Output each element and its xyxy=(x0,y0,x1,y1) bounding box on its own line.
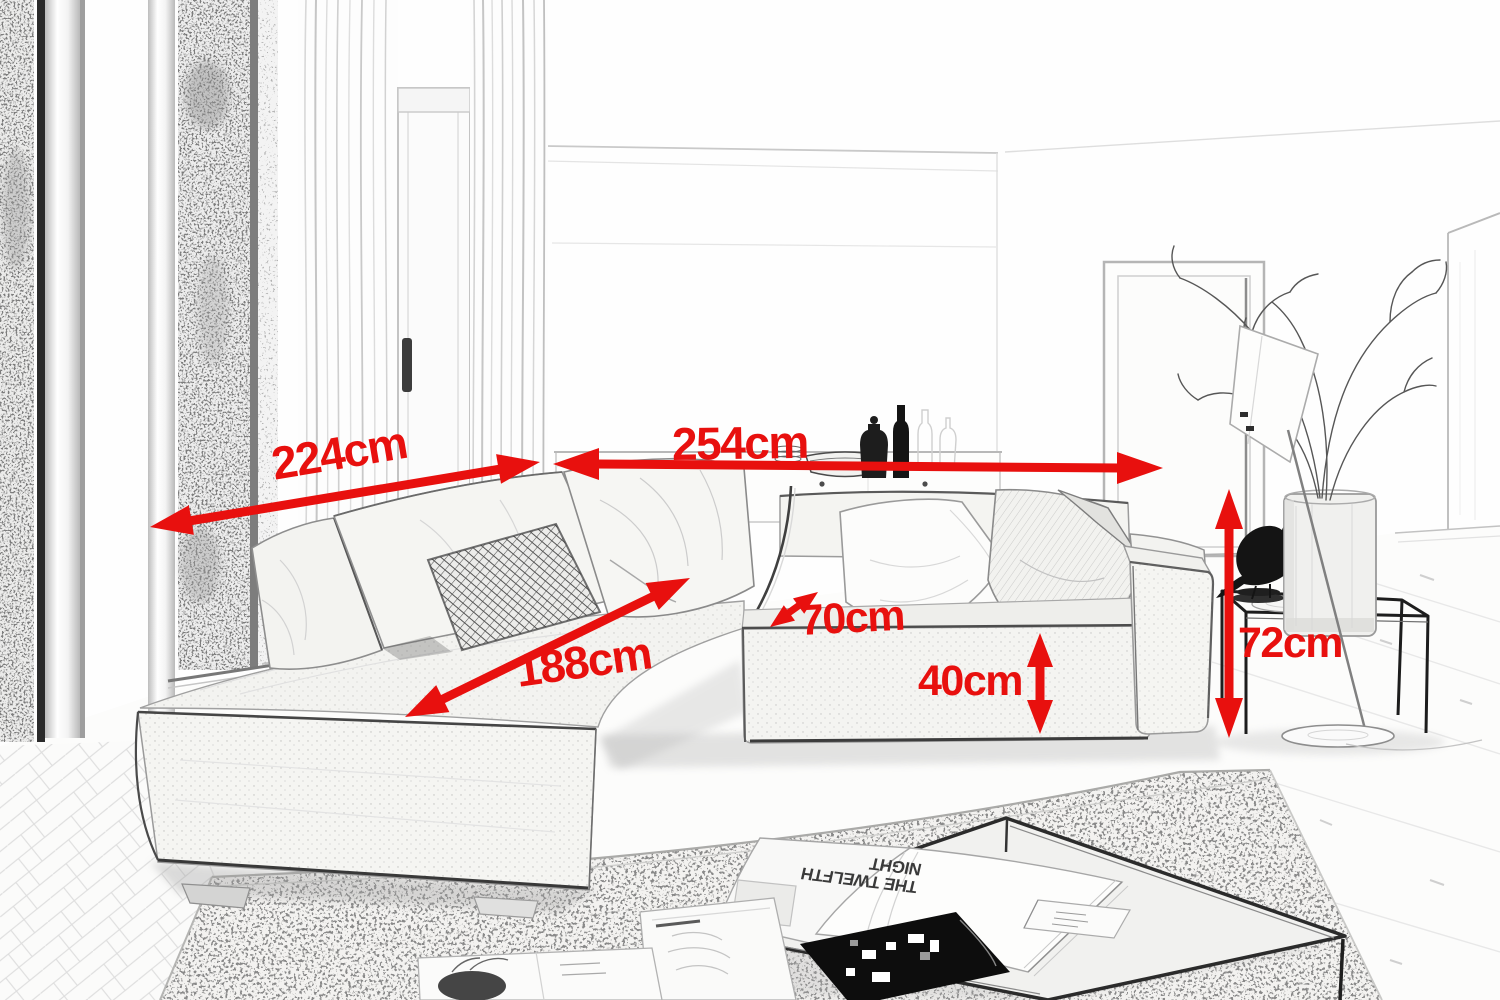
window-frame-strip xyxy=(37,0,45,742)
dimension-label-72: 72cm xyxy=(1238,622,1342,665)
sofa-foot xyxy=(474,897,538,918)
dimension-label-40: 40cm xyxy=(918,660,1022,703)
lamp-base xyxy=(1282,725,1394,747)
scene-sketch xyxy=(0,0,1500,1000)
armrest xyxy=(1124,546,1213,734)
sofa-dimension-sketch: 224cm 254cm 188cm 70cm 40cm 72cm THE TWE… xyxy=(0,0,1500,1000)
dimension-label-254: 254cm xyxy=(672,419,809,467)
window-mullion xyxy=(148,0,175,716)
door-handle xyxy=(402,338,412,392)
magazine-on-rug xyxy=(640,898,796,1000)
outdoor-foliage-texture xyxy=(0,0,34,742)
dimension-label-70: 70cm xyxy=(799,595,905,643)
magazine-bottom xyxy=(418,948,662,1000)
vase xyxy=(1284,490,1376,636)
